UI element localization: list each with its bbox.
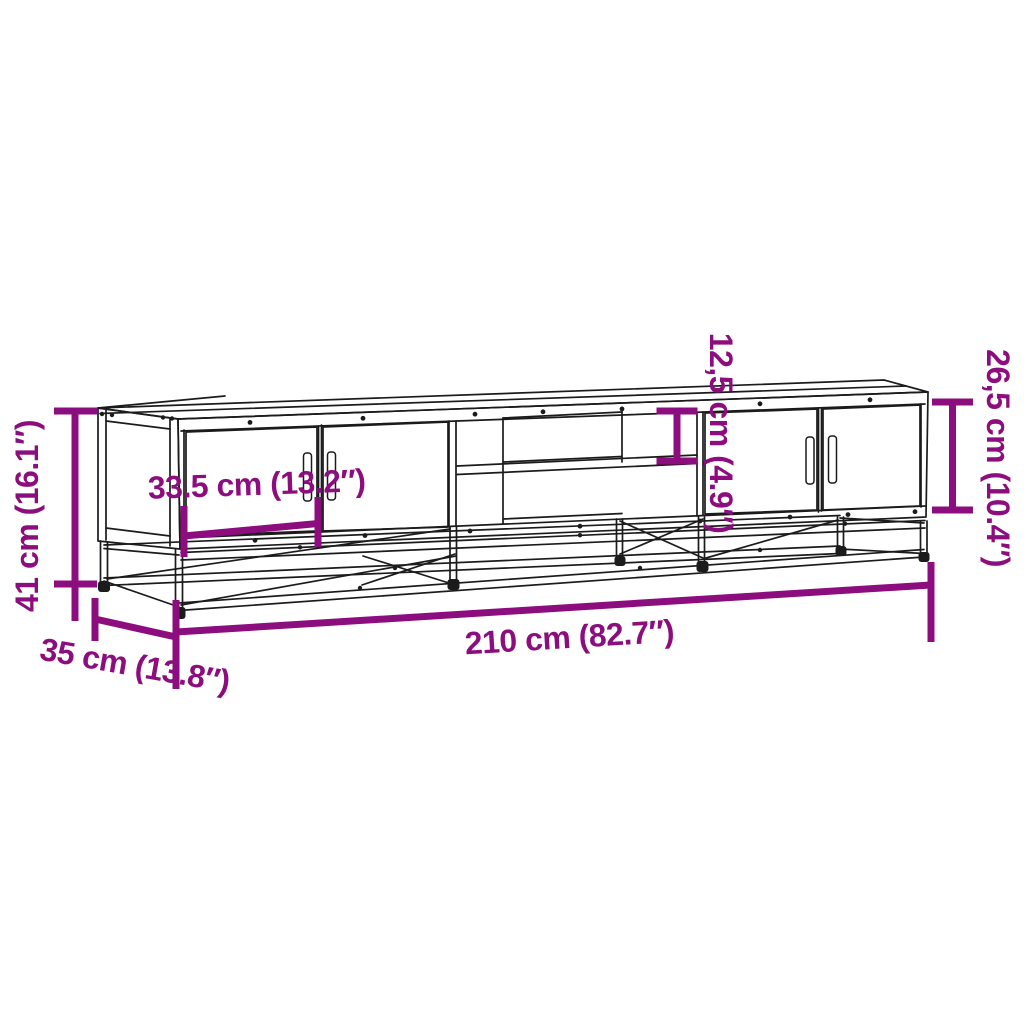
dimension-diagram-page: 41 cm (16.1″) 35 cm (13.8″) 210 cm (82.7… — [0, 0, 1024, 1024]
door-handle — [806, 437, 814, 484]
dim-line-overall-height — [54, 411, 97, 621]
door-handle — [829, 436, 837, 483]
label-overall-width: 210 cm (82.7″) — [464, 613, 675, 662]
cabinet-top-face — [98, 380, 928, 419]
label-shelf-opening-height: 12,5 cm (4.9″) — [703, 333, 739, 533]
label-overall-height: 41 cm (16.1″) — [9, 420, 45, 612]
label-door-width: 33.5 cm (13.2″) — [147, 462, 366, 506]
label-cabinet-body-height: 26,5 cm (10.4″) — [980, 349, 1016, 567]
dim-line-overall-depth — [95, 598, 176, 641]
dim-line-cabinet-body-height — [932, 402, 973, 510]
label-overall-depth: 35 cm (13.8″) — [37, 631, 232, 700]
tv-stand-dimension-diagram: 41 cm (16.1″) 35 cm (13.8″) 210 cm (82.7… — [0, 0, 1024, 1024]
dim-line-shelf-opening-height — [657, 411, 698, 461]
door-panel — [823, 405, 920, 510]
open-shelf-compartment — [457, 412, 697, 524]
